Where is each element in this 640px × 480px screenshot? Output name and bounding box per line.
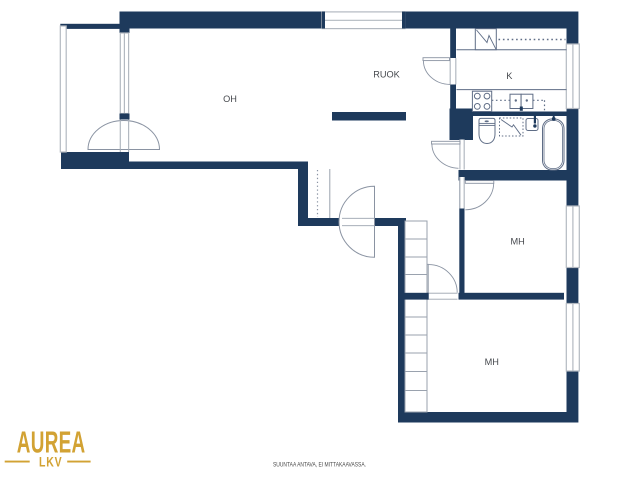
svg-text:LKV: LKV [39,454,62,470]
svg-text:RUOK: RUOK [373,69,400,79]
svg-text:K: K [506,71,513,81]
svg-text:MH: MH [485,357,499,367]
svg-text:OH: OH [223,94,237,104]
svg-text:SUUNTAA ANTAVA, EI MITTAKAAVAS: SUUNTAA ANTAVA, EI MITTAKAAVASSA. [273,462,366,469]
svg-text:MH: MH [510,236,524,246]
